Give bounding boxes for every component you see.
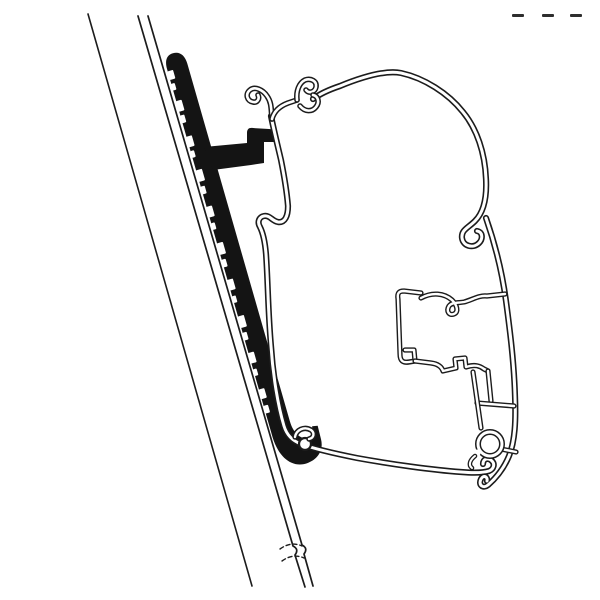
profile-top-link — [272, 100, 297, 119]
screw-boss-ring — [478, 432, 502, 456]
profile-top-claw-hook-b — [300, 95, 318, 111]
rib-top-wavy-with-loop — [421, 294, 505, 314]
screw-boss-ring-tail — [470, 456, 475, 468]
wall-panel-line-left — [138, 16, 305, 587]
profile-flange-and-bottom-lip — [259, 116, 494, 473]
profile-top-left-curl-hook — [247, 88, 272, 119]
wall-break-dash-upper — [280, 544, 302, 549]
rib-horizontal-to-wall — [477, 403, 514, 406]
rib-strut-to-ring — [473, 372, 481, 428]
diagram-canvas — [0, 0, 600, 600]
wall-break-dash-lower — [282, 556, 304, 561]
cropped-mark-dashes — [512, 14, 582, 17]
diagram-page — [0, 0, 600, 600]
profile-top-curve — [313, 72, 486, 246]
rib-upper-left-hooks — [398, 291, 421, 362]
rib-bottom-zigzag — [415, 358, 488, 371]
profile-right-wall — [480, 218, 515, 487]
rib-node-drop — [488, 371, 491, 401]
wall-outer-line — [88, 14, 252, 586]
adapter-arm-hook — [204, 128, 275, 170]
